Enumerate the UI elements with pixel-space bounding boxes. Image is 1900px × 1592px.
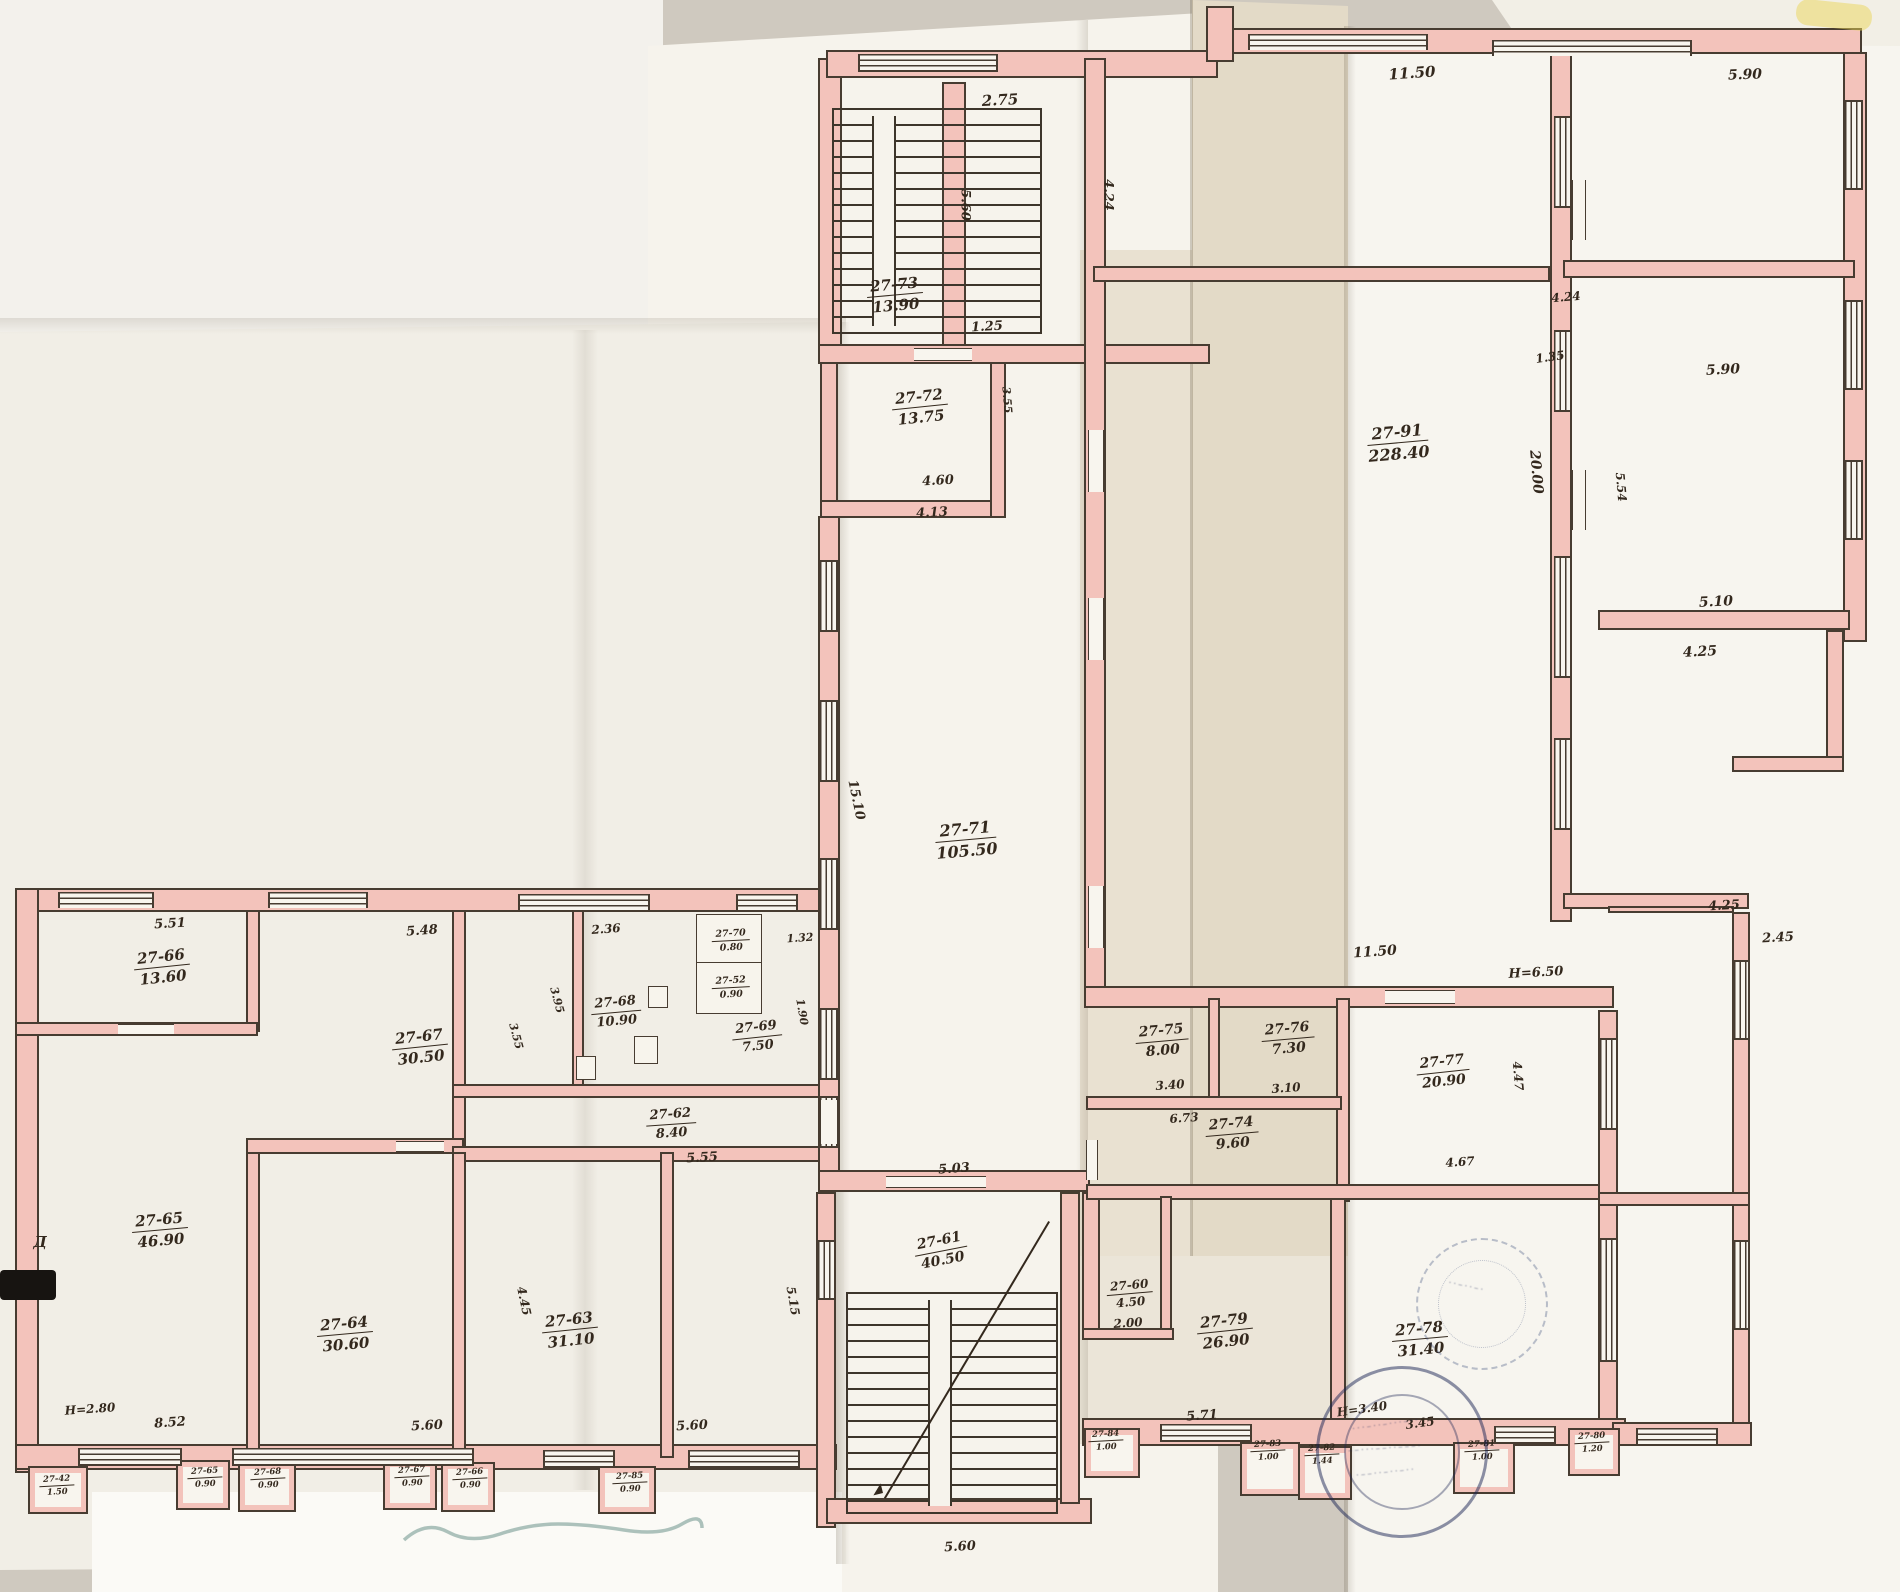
door-opening [1572,180,1586,240]
room-area: 0.90 [187,1478,223,1491]
window [1492,40,1692,56]
window [1554,116,1570,208]
room-label-27-62: 27-628.40 [645,1105,697,1143]
wall [818,344,1210,364]
room-label-27-74: 27-749.60 [1204,1113,1260,1154]
wall [1086,1096,1342,1110]
dim-label: 8.52 [154,1414,187,1431]
window [1734,960,1748,1040]
door-opening [1086,1140,1098,1180]
room-label-27-71: 27-71105.50 [934,817,999,864]
stairs-upper [832,108,1042,334]
dim-label: 5.60 [676,1418,708,1435]
window [1554,738,1570,830]
door-opening [1385,990,1455,1004]
room-label-27-77: 27-7720.90 [1415,1051,1471,1093]
door-opening [886,1176,986,1188]
wall [1160,1196,1172,1336]
dim-label: 4.25 [1708,898,1740,915]
wall [820,362,838,518]
window [820,700,838,782]
room-label-27-91: 27-91228.40 [1366,420,1431,467]
fixture-icon [576,1056,596,1080]
dim-label: 3.10 [1271,1080,1301,1096]
wall [452,1152,466,1458]
window [1494,1426,1556,1444]
room-area: 1.50 [39,1486,75,1499]
room-label-27-80: 27-801.20 [1574,1430,1610,1455]
room-area: 1.20 [1574,1443,1610,1456]
room-label-27-65: 27-6546.90 [130,1208,189,1252]
dim-label: 11.50 [1353,942,1398,961]
dim-label: 3.55 [999,386,1014,414]
dim-label: 5.51 [154,916,186,933]
wall [990,362,1006,518]
window [1160,1424,1252,1442]
room-area: 1.00 [1088,1441,1124,1454]
dim-label: 5.54 [1613,472,1629,502]
window [1845,100,1863,190]
door-opening [914,348,972,361]
dim-label: 11.50 [1388,62,1436,83]
window [736,894,798,910]
wall [15,888,39,1473]
room-area: 0.80 [712,940,751,954]
window [1248,34,1428,50]
window [268,892,368,908]
dim-label: 1.32 [786,931,814,946]
dim-label: 2.45 [1762,930,1794,947]
dim-label: 5.60 [958,189,973,221]
wall [1563,260,1855,278]
window [518,894,650,910]
dim-label: 4.13 [916,505,948,522]
dim-label: 5.90 [1728,66,1763,83]
room-label-27-68: 27-680.90 [250,1466,286,1491]
dim-label: H=6.50 [1508,964,1564,982]
dim-label: 5.60 [944,1539,976,1556]
room-label-27-42: 27-421.50 [39,1473,75,1498]
dim-label: 4.24 [1551,289,1581,305]
wall [1060,1192,1080,1504]
dim-label: 5.60 [411,1418,443,1435]
ink-scribble [398,1506,708,1562]
door-opening [118,1024,174,1035]
window [820,560,838,632]
room-label-27-84: 27-841.00 [1088,1428,1124,1453]
window [1600,1038,1616,1130]
wall [1598,1192,1750,1206]
window [858,54,998,72]
wall [1598,610,1850,630]
black-tape-mark [0,1270,56,1300]
round-stamp [1438,1260,1526,1348]
door-opening [1088,886,1104,948]
room-label-27-67: 27-6730.50 [390,1025,450,1070]
fixture-icon [648,986,668,1008]
wall [1826,630,1844,766]
dim-label: 5.10 [1699,593,1734,611]
wall [452,1146,834,1162]
dim-label: 4.60 [922,473,954,490]
window [688,1450,800,1468]
dim-label: Д [33,1233,46,1251]
room-label-27-66: 27-6613.60 [132,945,192,990]
room-label-27-73: 27-7313.90 [865,273,924,317]
room-label-27-79: 27-7926.90 [1195,1309,1255,1354]
window [1636,1428,1718,1444]
door-opening [1088,430,1104,492]
dim-label: 4.24 [1101,179,1116,211]
door-opening [1572,470,1586,530]
room-label-27-85: 27-850.90 [612,1470,648,1495]
room-label-27-63: 27-6331.10 [540,1308,600,1353]
dim-label: 4.67 [1445,1154,1475,1170]
dim-label: 3.40 [1155,1077,1185,1093]
window [1554,556,1570,678]
door-opening [396,1141,444,1152]
room-label-27-76: 27-767.30 [1260,1018,1316,1059]
dim-label: 6.73 [1169,1110,1199,1126]
dim-label: 1.25 [971,319,1003,336]
room-area: 0.90 [612,1483,648,1496]
door-opening [1088,598,1104,660]
wall [1082,1192,1100,1340]
window [1600,1238,1616,1362]
window [820,858,838,930]
dim-label: 5.55 [686,1150,718,1167]
room-label-27-52: 27-520.90 [711,974,751,1002]
window [1845,460,1863,540]
room-area: 0.90 [712,987,751,1001]
dim-label: 2.36 [591,921,621,937]
room-label-27-67: 27-670.90 [394,1464,430,1489]
room-label-27-83: 27-831.00 [1250,1438,1286,1463]
room-label-27-65: 27-650.90 [187,1465,223,1490]
wall [246,910,260,1032]
room-label-27-60: 27-604.50 [1106,1276,1155,1312]
window [1845,300,1863,390]
wall [820,500,1004,518]
room-area: 0.90 [250,1479,286,1492]
wall [1093,266,1550,282]
room-area: 0.90 [452,1479,488,1492]
floor-plan-scan: 27-7313.9027-7213.7527-71105.5027-91228.… [0,0,1900,1592]
room-area: 1.00 [1250,1451,1286,1464]
room-area: 8.40 [646,1123,697,1143]
window [820,1008,838,1080]
wall [1208,998,1220,1100]
fixture-icon [634,1036,658,1064]
wall [1206,6,1234,62]
wall [1732,756,1844,772]
dim-label: 4.25 [1683,643,1718,661]
dim-label: 5.71 [1186,1407,1219,1424]
room-label-27-64: 27-6430.60 [315,1312,374,1356]
window [232,1448,474,1466]
wall [660,1152,674,1458]
window [818,1240,834,1300]
dim-label: 4.47 [1510,1061,1526,1091]
window [58,892,154,908]
wall [452,1084,834,1098]
window [78,1448,182,1466]
room-label-27-66: 27-660.90 [452,1466,488,1491]
dim-label: 5.48 [406,922,439,939]
dim-label: 2.00 [1113,1315,1143,1331]
room-label-27-70: 27-700.80 [711,927,751,955]
wall [246,1152,260,1458]
room-label-27-72: 27-7213.75 [890,385,950,430]
room-label-27-75: 27-758.00 [1134,1020,1190,1061]
room-label-27-69: 27-697.50 [731,1017,784,1056]
dim-label: 5.90 [1706,361,1741,379]
window [1734,1240,1748,1330]
stairs-lower [846,1292,1058,1514]
room-label-27-68: 27-6810.90 [590,993,642,1031]
wall [452,910,466,1150]
window [543,1450,615,1468]
window [1554,330,1570,412]
dim-label: 5.03 [938,1160,971,1177]
door-opening [820,1100,838,1144]
dim-label: 2.75 [981,90,1018,110]
room-area: 0.90 [394,1477,430,1490]
